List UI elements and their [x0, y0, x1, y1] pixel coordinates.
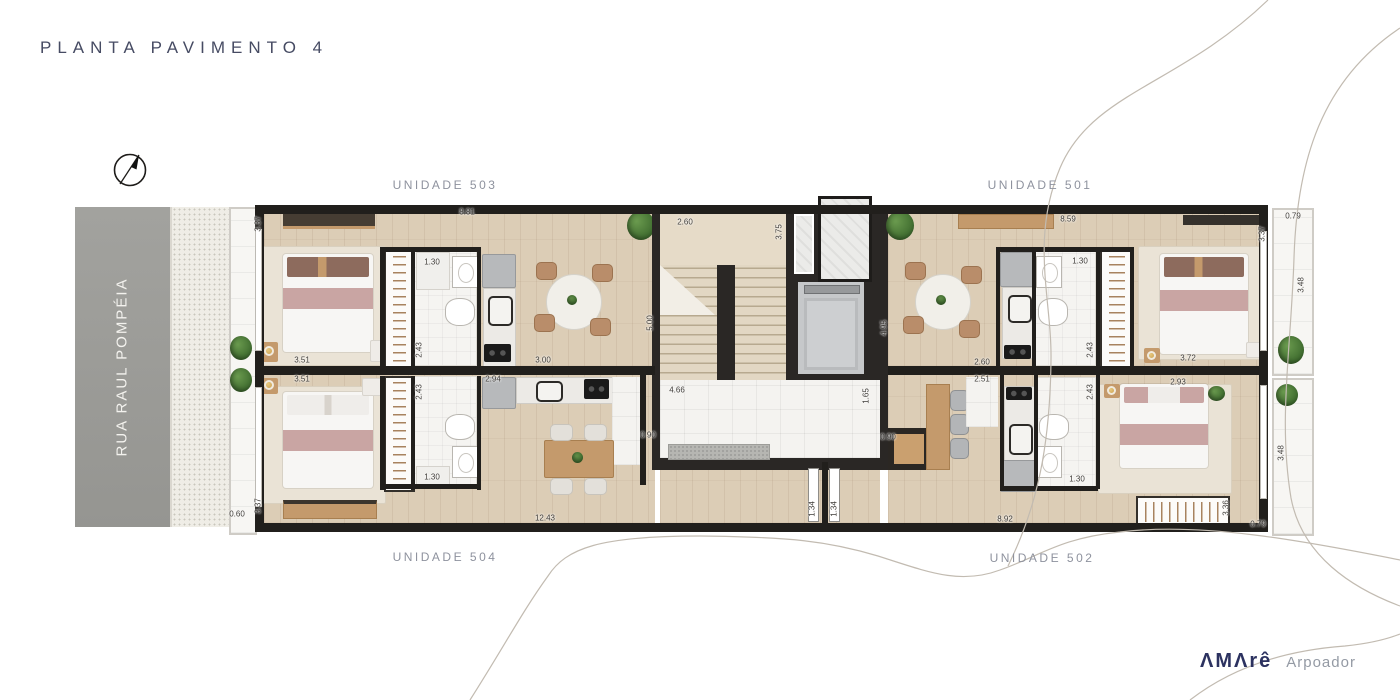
cooktop: [1006, 387, 1032, 400]
stair-flight-right: [735, 265, 786, 383]
window: [256, 230, 261, 350]
exterior-wall-bottom: [255, 523, 1268, 532]
floor-plan-page: PLANTA PAVIMENTO 4 RUA RAUL POMPÉIA: [0, 0, 1400, 700]
dim-label: 0.79: [1250, 520, 1266, 529]
unit-label-502: UNIDADE 502: [990, 551, 1095, 565]
brand-logo: ΛMΛrê Arpoador: [1200, 650, 1356, 673]
bar-stool: [950, 438, 969, 459]
plant-icon: [1208, 386, 1225, 401]
dim-label: 0.60: [229, 510, 245, 519]
plant-icon: [230, 368, 252, 392]
bathroom-sink: [452, 446, 478, 478]
bathroom-sink: [1036, 446, 1062, 478]
centerpiece-plant-icon: [936, 295, 946, 305]
kitchen-sink: [1009, 424, 1033, 455]
bed: [1160, 254, 1248, 354]
bar-counter: [926, 384, 950, 470]
dim-label: 2.60: [677, 218, 693, 227]
unit-label-504: UNIDADE 504: [393, 550, 498, 564]
unit-label-501: UNIDADE 501: [988, 178, 1093, 192]
lamp-icon: [1107, 386, 1116, 395]
plant-icon: [1276, 384, 1298, 406]
cooktop: [584, 379, 609, 399]
chair: [903, 316, 924, 334]
dim-label: 4.66: [669, 386, 685, 395]
dim-label: 3.37: [254, 498, 263, 514]
dim-label: 3.37: [254, 216, 263, 232]
dim-label: 5.00: [646, 315, 655, 331]
dim-label: 0.79: [1285, 212, 1301, 221]
entry-corridor-floor: [660, 470, 880, 523]
dim-label: 1.30: [424, 473, 440, 482]
bed: [283, 254, 373, 352]
dim-label: 3.51: [294, 356, 310, 365]
dim-label: 1.30: [1069, 475, 1085, 484]
street-name-label: RUA RAUL POMPÉIA: [114, 278, 131, 457]
dim-label: 12.43: [535, 514, 555, 523]
elevator-cab: [804, 298, 858, 370]
dim-label: 2.93: [1170, 378, 1186, 387]
toilet: [1039, 414, 1069, 440]
plant-icon: [886, 211, 914, 240]
dim-label: 3.75: [775, 224, 784, 240]
plant-icon: [230, 336, 252, 360]
dim-label: 8.92: [997, 515, 1013, 524]
fridge: [482, 254, 516, 288]
bed-throw: [1120, 424, 1208, 445]
chair: [584, 424, 607, 441]
centerpiece-plant-icon: [572, 452, 583, 463]
elevator-door: [804, 285, 860, 294]
party-wall: [264, 366, 655, 375]
chair: [550, 424, 573, 441]
toilet: [445, 298, 475, 326]
dim-label: 8.59: [1060, 215, 1076, 224]
kitchen-sink: [1008, 295, 1032, 323]
pillows: [287, 395, 369, 415]
bathroom-sink: [452, 256, 478, 288]
bathroom-sink: [1036, 256, 1062, 288]
sideboard: [958, 214, 1054, 229]
entry-vestibule: [966, 377, 998, 427]
dim-label: 1.65: [862, 388, 871, 404]
window: [256, 388, 261, 506]
dim-label: 2.60: [974, 358, 990, 367]
window: [1261, 386, 1266, 498]
plant-icon: [627, 211, 655, 240]
party-wall: [888, 366, 1259, 375]
bed-throw: [283, 430, 373, 451]
bed: [283, 392, 373, 488]
kitchen-sink: [536, 381, 563, 402]
chair: [550, 478, 573, 495]
sideboard: [283, 500, 377, 519]
cooktop: [484, 344, 511, 362]
dim-label: 3.51: [294, 375, 310, 384]
lamp-icon: [264, 380, 274, 390]
lamp-icon: [1147, 351, 1156, 360]
dim-label: 1.34: [830, 501, 839, 517]
dim-label: 3.37: [1258, 226, 1267, 242]
dim-label: 3.72: [1180, 354, 1196, 363]
stair-cut-line: [660, 265, 715, 315]
toilet: [1038, 298, 1068, 326]
chair: [592, 264, 613, 282]
dim-label: 1.30: [424, 258, 440, 267]
brand-subtitle: Arpoador: [1286, 654, 1356, 671]
dim-label: 2.94: [485, 375, 501, 384]
dim-label: 3.36: [1222, 500, 1231, 516]
centerpiece-plant-icon: [567, 295, 577, 305]
dim-label: 0.90: [880, 433, 896, 442]
bed: [1120, 384, 1208, 468]
dim-label: 1.34: [808, 501, 817, 517]
chair: [534, 314, 555, 332]
lamp-icon: [264, 346, 274, 356]
dim-label: 2.51: [974, 375, 990, 384]
chair: [905, 262, 926, 280]
dim-label: 8.81: [459, 208, 475, 217]
chair: [536, 262, 557, 280]
bed-throw: [1160, 290, 1248, 311]
dim-label: 2.43: [1086, 384, 1095, 400]
entry-vestibule: [612, 377, 642, 465]
headboard-cushions: [1164, 257, 1244, 277]
sidewalk: [170, 207, 232, 527]
bed-throw: [283, 288, 373, 309]
dim-label: 1.30: [1072, 257, 1088, 266]
window: [1261, 232, 1266, 350]
dim-label: 3.00: [535, 356, 551, 365]
north-compass-icon: [106, 146, 154, 194]
chair: [584, 478, 607, 495]
fridge: [1000, 252, 1035, 287]
headboard-cushions: [287, 257, 369, 277]
page-title: PLANTA PAVIMENTO 4: [40, 38, 328, 58]
dim-label: 3.48: [1277, 445, 1286, 461]
plant-icon: [1278, 336, 1304, 364]
unit-label-503: UNIDADE 503: [393, 178, 498, 192]
kitchen-sink: [488, 296, 513, 326]
tv-console: [283, 214, 375, 229]
cooktop: [1004, 345, 1031, 359]
doormat: [668, 444, 770, 460]
chair: [961, 266, 982, 284]
dim-label: 2.43: [1086, 342, 1095, 358]
dim-label: 2.43: [415, 384, 424, 400]
dim-label: 4.95: [880, 320, 889, 336]
chair: [590, 318, 611, 336]
toilet: [445, 414, 475, 440]
chair: [959, 320, 980, 338]
wardrobe: [1100, 250, 1134, 370]
shaft: [794, 214, 814, 274]
dim-label: 2.43: [415, 342, 424, 358]
brand-name: ΛMΛrê: [1200, 650, 1272, 673]
tv-console: [1183, 215, 1263, 225]
pillows: [1124, 387, 1204, 403]
exterior-wall-top: [255, 205, 1268, 214]
dim-label: 0.90: [640, 431, 656, 440]
dim-label: 3.48: [1297, 277, 1306, 293]
